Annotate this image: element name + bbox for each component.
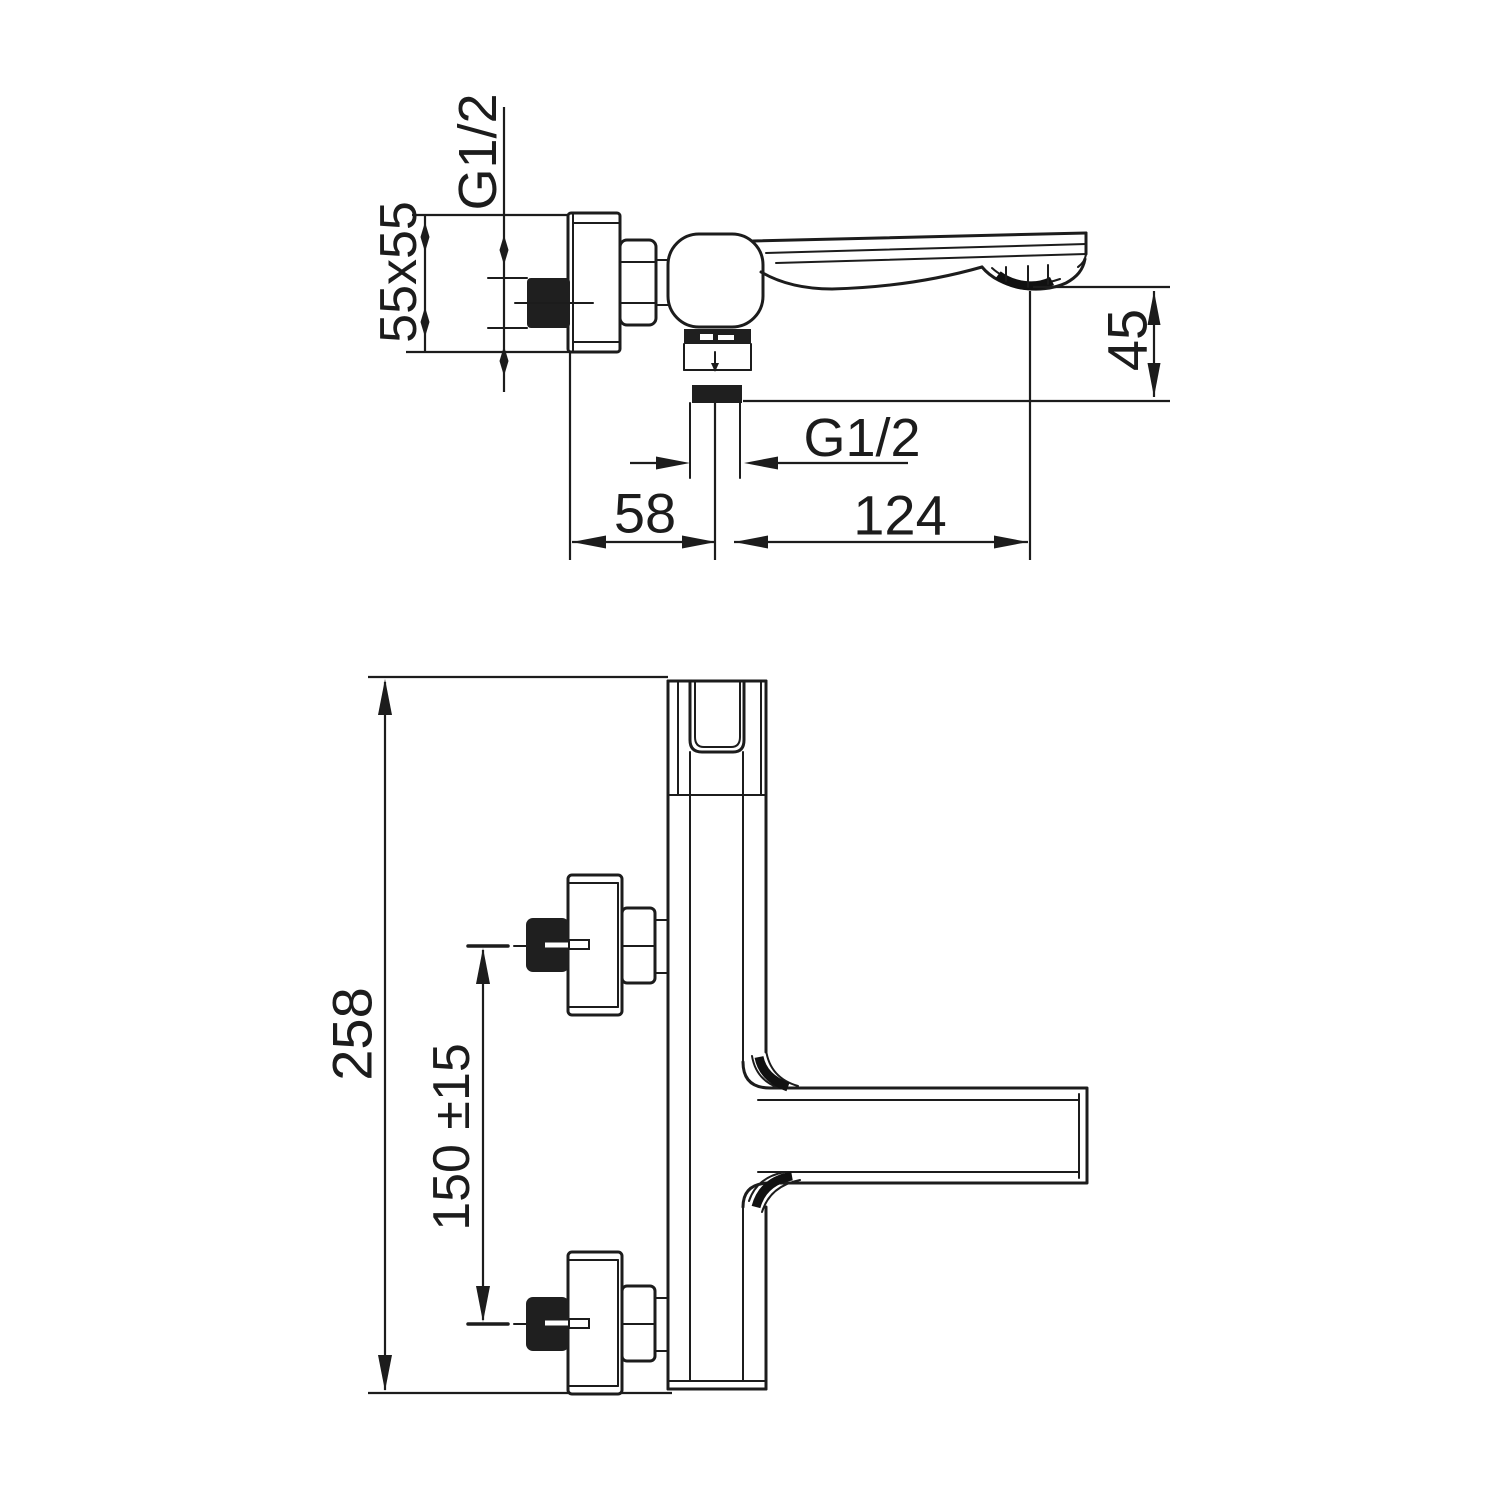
lower-elbow-chamfer	[749, 1172, 800, 1212]
front-view: 258 150 ±15	[321, 677, 1088, 1394]
spout-front-view	[743, 1050, 1087, 1212]
diamond-mark	[500, 346, 509, 376]
lower-wall-connection	[526, 1252, 668, 1394]
lower-slot	[569, 1319, 589, 1328]
dim-label-outlet-to-tip: 124	[853, 484, 946, 547]
technical-drawing: 55x55 G1/2	[0, 0, 1500, 1500]
dim-outlet-thread: G1/2	[630, 408, 921, 470]
upper-wall-connection	[526, 875, 668, 1015]
escutcheon-top-view	[568, 213, 620, 352]
dim-connection-spacing-150: 150 ±15	[423, 946, 526, 1324]
dim-outlet-to-tip-124: 124	[734, 484, 1028, 549]
dim-label-wall-to-outlet: 58	[614, 482, 676, 545]
mixer-body-front-view	[668, 681, 766, 1389]
drawing-page: 55x55 G1/2	[0, 0, 1500, 1500]
dim-label-spout-drop: 45	[1096, 309, 1159, 371]
handle-front-view	[690, 681, 744, 752]
dim-label-inlet-thread: G1/2	[448, 93, 508, 210]
dim-wall-to-outlet-58: 58	[570, 352, 716, 560]
dim-label-outlet-thread: G1/2	[803, 408, 920, 468]
hex-nut-top-view	[620, 240, 669, 325]
dim-inlet-thread: G1/2	[448, 93, 509, 392]
brand-logo-band	[684, 329, 751, 344]
lever-tip	[982, 259, 1085, 289]
upper-elbow-chamfer	[752, 1050, 798, 1088]
upper-slot	[569, 940, 589, 949]
dim-label-overall-height: 258	[321, 987, 384, 1080]
dim-label-escutcheon-size: 55x55	[370, 201, 428, 343]
mixer-body-top-view	[668, 234, 763, 560]
dim-escutcheon-55x55: 55x55	[370, 201, 570, 352]
handle-lever-top-view	[753, 233, 1086, 289]
dim-label-connection-spacing: 150 ±15	[423, 1043, 481, 1231]
top-view: 55x55 G1/2	[370, 93, 1170, 560]
diamond-mark	[500, 235, 509, 265]
outlet-stub	[692, 385, 742, 403]
